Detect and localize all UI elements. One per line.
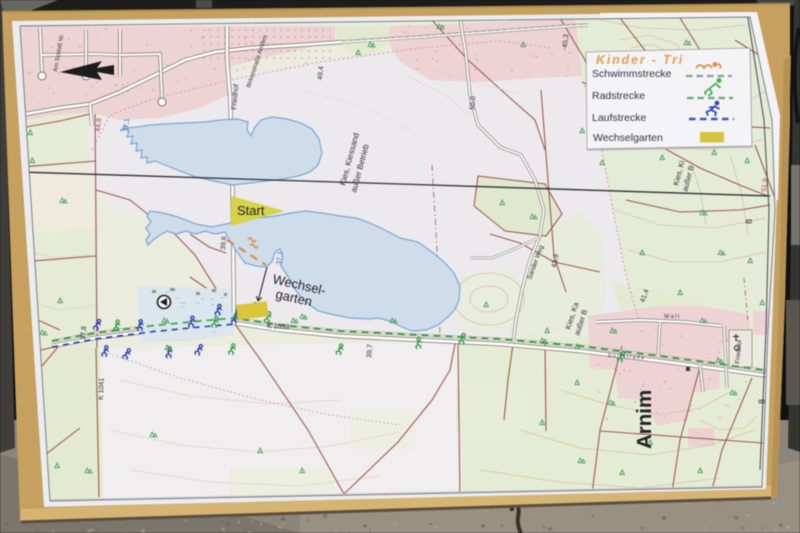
svg-text:Wechselgarten: Wechselgarten bbox=[593, 132, 663, 144]
svg-text:39,7: 39,7 bbox=[366, 344, 374, 358]
svg-text:50,0: 50,0 bbox=[469, 96, 477, 110]
svg-text:8: 8 bbox=[744, 219, 754, 224]
svg-text:Radstrecke: Radstrecke bbox=[592, 90, 645, 102]
svg-text:K 1039: K 1039 bbox=[267, 323, 290, 331]
svg-text:44,8: 44,8 bbox=[95, 118, 103, 132]
svg-text:45,3: 45,3 bbox=[562, 34, 570, 48]
svg-text:Kinder - Tri: Kinder - Tri bbox=[596, 53, 684, 67]
svg-text:49,4: 49,4 bbox=[317, 66, 325, 80]
svg-text:Start: Start bbox=[237, 203, 265, 218]
svg-text:Schwimmstrecke: Schwimmstrecke bbox=[592, 68, 672, 80]
svg-text:51,9: 51,9 bbox=[761, 178, 769, 192]
svg-text:37,8: 37,8 bbox=[80, 326, 88, 340]
svg-text:37,1: 37,1 bbox=[123, 118, 131, 132]
svg-text:K 1041: K 1041 bbox=[98, 378, 106, 401]
svg-text:Laufstrecke: Laufstrecke bbox=[592, 112, 646, 124]
svg-text:Arnim: Arnim bbox=[633, 390, 656, 449]
svg-text:W a l l: W a l l bbox=[664, 314, 679, 320]
svg-text:39,6: 39,6 bbox=[220, 236, 228, 250]
svg-text:37,1: 37,1 bbox=[276, 251, 284, 265]
